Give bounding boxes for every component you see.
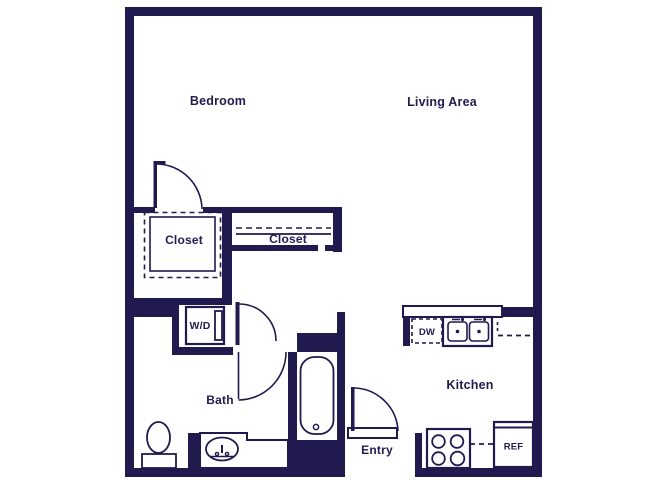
wall-tub-bottom — [288, 440, 345, 477]
wd-door-swing — [240, 304, 277, 341]
refrigerator-label: REF — [504, 442, 524, 453]
bathtub-drain — [313, 424, 318, 429]
toilet-tank — [142, 454, 176, 468]
wall-top — [125, 7, 542, 16]
bathtub — [301, 357, 334, 434]
entry-door-leaf — [351, 387, 355, 431]
wd-door-leaf — [236, 302, 240, 345]
wall-closet-top-left — [125, 207, 155, 213]
wall-tub-top — [297, 333, 337, 352]
wall-counter-stub-left — [403, 317, 410, 346]
dishwasher-label: DW — [419, 327, 435, 338]
entry-threshold — [348, 428, 397, 438]
washer-dryer-label: W/D — [189, 320, 210, 332]
floor-plan: Bedroom Living Area Closet Closet W/D Ba… — [0, 0, 670, 480]
sink-drain-right — [477, 330, 481, 334]
vanity-counter — [200, 433, 288, 468]
wall-counter-stub-right — [502, 307, 533, 317]
floor-plan-drawing: Bedroom Living Area Closet Closet W/D Ba… — [0, 0, 670, 480]
wall-entry-right-stub — [415, 433, 422, 468]
sink-faucet-left-dot — [461, 318, 464, 321]
entry-door-swing — [355, 388, 399, 431]
living-area-label: Living Area — [407, 95, 478, 109]
bath-door-swing — [239, 352, 287, 400]
sink-drain-left — [456, 330, 460, 334]
bedroom-door-leaf — [154, 163, 158, 208]
kitchen-label: Kitchen — [446, 378, 493, 392]
wall-wd-left — [172, 298, 179, 355]
wall-closet-divider — [222, 207, 232, 305]
wall-wd-top — [172, 298, 232, 305]
counter-band — [403, 306, 502, 317]
wall-hall-closet-bottom-stub — [325, 245, 342, 251]
walk-in-closet-label: Closet — [165, 233, 203, 247]
wall-vanity-stub — [188, 433, 200, 468]
wall-left — [125, 7, 134, 477]
bedroom-label: Bedroom — [190, 94, 246, 108]
wall-right — [533, 7, 542, 477]
toilet-bowl — [147, 422, 170, 453]
bath-label: Bath — [206, 393, 233, 407]
sink-faucet-right-dot — [483, 318, 486, 321]
wall-bottom-right — [415, 468, 542, 477]
hall-closet-label: Closet — [269, 232, 307, 246]
entry-label: Entry — [361, 443, 393, 457]
wall-closet-bath-band — [125, 298, 177, 317]
wall-wd-bottom — [172, 347, 233, 355]
bedroom-door-swing — [157, 164, 202, 209]
